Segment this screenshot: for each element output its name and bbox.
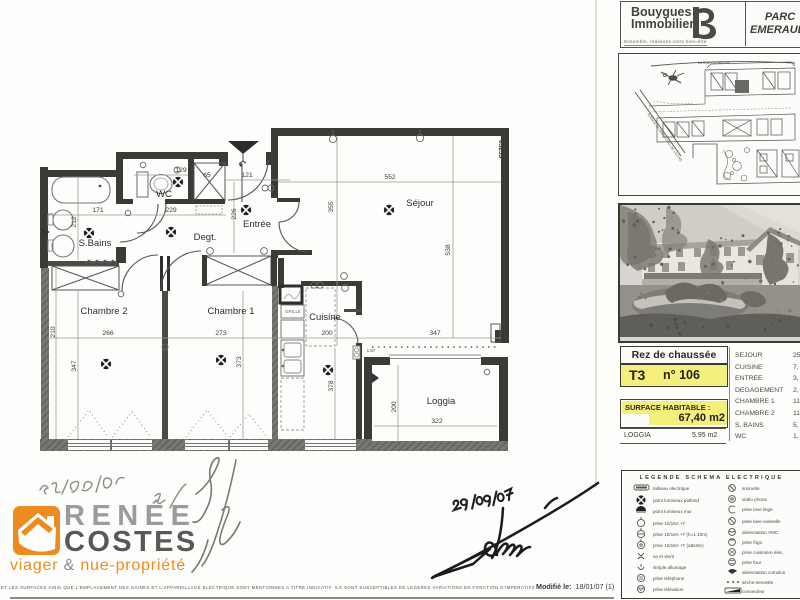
svg-text:05253: 05253 xyxy=(497,140,504,158)
svg-text:prise téléphone: prise téléphone xyxy=(653,576,685,581)
svg-text:347: 347 xyxy=(429,330,441,337)
svg-text:prise 10/16A +T (h=1.10m): prise 10/16A +T (h=1.10m) xyxy=(653,532,708,537)
svg-text:alimentation cumulus: alimentation cumulus xyxy=(742,570,786,575)
svg-text:prise lave linge: prise lave linge xyxy=(742,507,773,512)
svg-text:200: 200 xyxy=(321,330,333,337)
svg-text:200: 200 xyxy=(391,401,398,413)
svg-text:226: 226 xyxy=(231,208,238,220)
svg-text:210: 210 xyxy=(50,326,57,338)
svg-text:Séjour: Séjour xyxy=(406,198,433,209)
svg-text:Loggia: Loggia xyxy=(427,396,456,407)
svg-text:S.Bains: S.Bains xyxy=(79,238,112,249)
svg-text:373: 373 xyxy=(236,356,243,368)
svg-text:tableau electrique: tableau electrique xyxy=(653,486,690,491)
svg-text:552: 552 xyxy=(384,174,396,181)
svg-text:alimentation VMC: alimentation VMC xyxy=(742,530,779,535)
svg-text:connecteur: connecteur xyxy=(742,589,765,594)
svg-text:171: 171 xyxy=(92,207,104,214)
svg-text:355: 355 xyxy=(328,201,335,213)
svg-text:AVENUE DU MARECHAL DE LATTRE: AVENUE DU MARECHAL DE LATTRE xyxy=(646,112,683,163)
svg-text:vidéo phone: vidéo phone xyxy=(742,497,767,502)
svg-text:prise 10/16A +T (attente): prise 10/16A +T (attente) xyxy=(653,543,704,548)
svg-text:212: 212 xyxy=(71,216,78,228)
svg-text:1.57: 1.57 xyxy=(367,348,376,353)
svg-text:229: 229 xyxy=(165,207,177,214)
svg-text:Chambre 2: Chambre 2 xyxy=(81,306,128,317)
svg-text:point lumineux mur: point lumineux mur xyxy=(653,509,692,514)
svg-text:prise 10/16A +T: prise 10/16A +T xyxy=(653,521,685,526)
svg-text:sèche-serviette: sèche-serviette xyxy=(742,580,774,585)
svg-text:va et vient: va et vient xyxy=(653,554,675,559)
svg-text:prise frigo: prise frigo xyxy=(742,540,763,545)
svg-text:prise four: prise four xyxy=(742,560,762,565)
svg-text:65: 65 xyxy=(203,172,211,179)
svg-text:322: 322 xyxy=(431,418,443,425)
svg-text:prise cuisinière élec.: prise cuisinière élec. xyxy=(742,550,784,555)
svg-text:Chambre 1: Chambre 1 xyxy=(208,306,255,317)
svg-text:266: 266 xyxy=(102,330,114,337)
svg-text:Degt.: Degt. xyxy=(194,232,217,243)
svg-text:prise lave vaisselle: prise lave vaisselle xyxy=(742,519,781,524)
svg-text:Cuisine: Cuisine xyxy=(309,312,341,323)
svg-text:121: 121 xyxy=(241,172,253,179)
svg-text:sonnette: sonnette xyxy=(742,486,760,491)
svg-text:347: 347 xyxy=(71,360,78,372)
svg-text:378: 378 xyxy=(328,380,335,392)
svg-text:273: 273 xyxy=(215,330,227,337)
svg-text:Entrée: Entrée xyxy=(243,219,271,230)
svg-text:538: 538 xyxy=(445,244,452,256)
svg-text:GRILLE: GRILLE xyxy=(285,309,301,314)
svg-text:WC: WC xyxy=(156,189,172,200)
svg-text:point lumineux plafond: point lumineux plafond xyxy=(653,498,699,503)
svg-text:LA RUE DU MASSIF: LA RUE DU MASSIF xyxy=(698,61,730,65)
svg-text:simple allumage: simple allumage xyxy=(653,565,687,570)
